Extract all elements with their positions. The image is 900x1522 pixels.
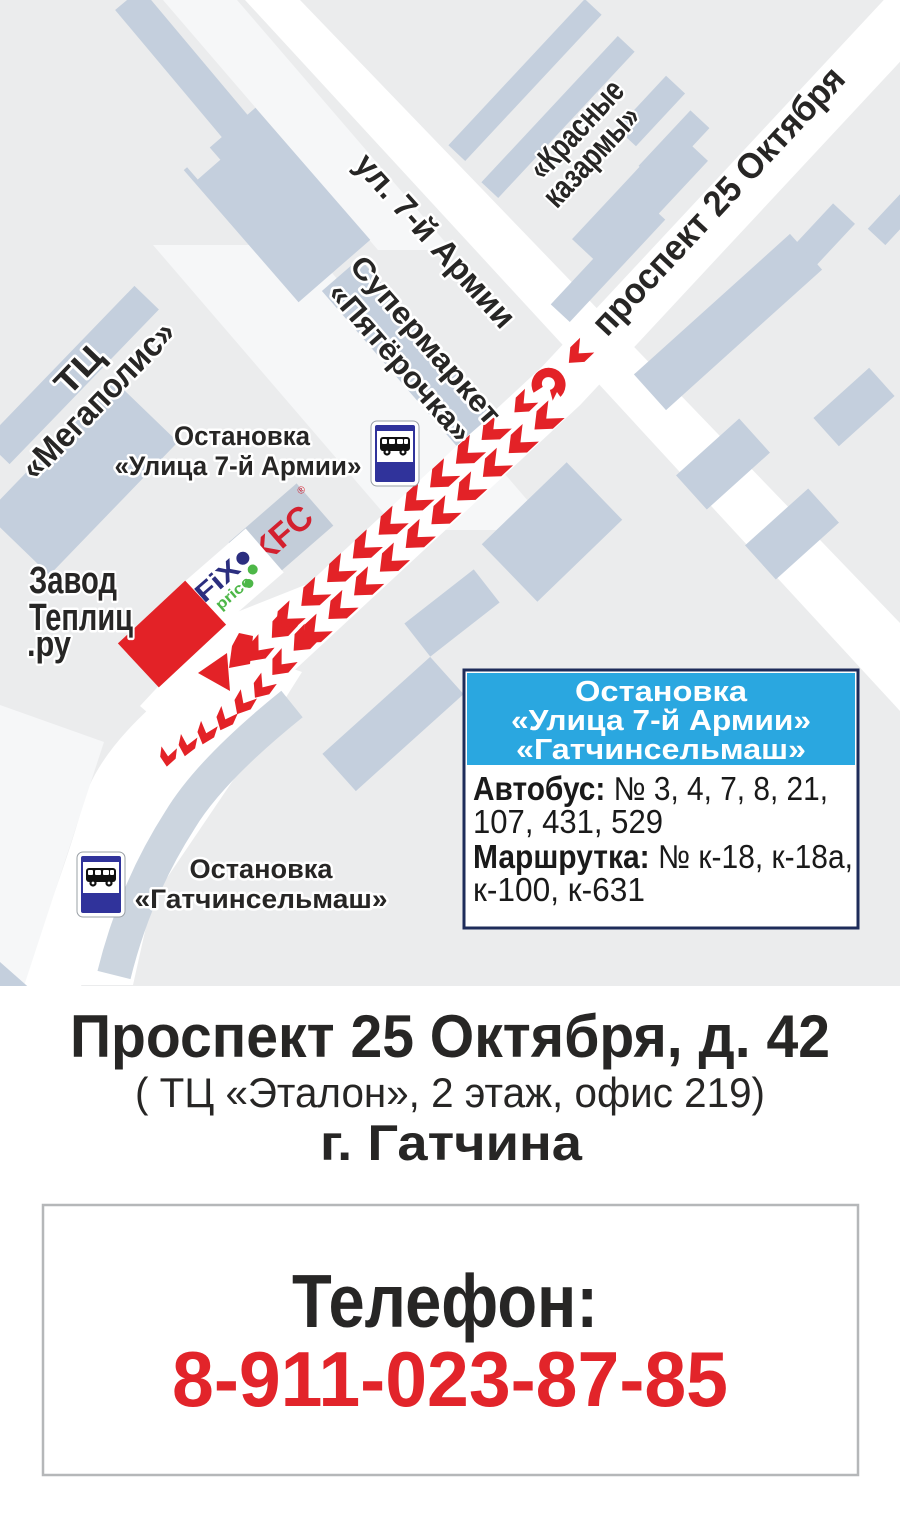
svg-text:г. Гатчина: г. Гатчина (320, 1115, 583, 1171)
svg-text:«Улица 7-й Армии»: «Улица 7-й Армии» (511, 705, 811, 737)
svg-text:Телефон:: Телефон: (292, 1259, 598, 1343)
svg-text:Остановка: Остановка (174, 421, 311, 451)
svg-text:Остановка: Остановка (575, 676, 748, 708)
svg-text:«Улица 7-й Армии»: «Улица 7-й Армии» (115, 451, 362, 481)
svg-text:«Гатчинсельмаш»: «Гатчинсельмаш» (135, 884, 388, 914)
svg-text:Проспект 25 Октября, д. 42: Проспект 25 Октября, д. 42 (70, 1003, 830, 1070)
svg-text:Маршрутка: № к-18, к-18а,: Маршрутка: № к-18, к-18а, (473, 838, 853, 875)
svg-text:107, 431, 529: 107, 431, 529 (473, 803, 663, 840)
svg-text:Остановка: Остановка (190, 854, 334, 884)
svg-text:( ТЦ «Эталон», 2 этаж, офис 21: ( ТЦ «Эталон», 2 этаж, офис 219) (135, 1069, 765, 1116)
svg-text:Завод: Завод (29, 560, 117, 602)
svg-text:Автобус: № 3, 4, 7, 8, 21,: Автобус: № 3, 4, 7, 8, 21, (473, 770, 828, 807)
svg-text:8-911-023-87-85: 8-911-023-87-85 (172, 1335, 728, 1423)
svg-text:.ру: .ру (27, 623, 71, 664)
svg-text:к-100, к-631: к-100, к-631 (473, 871, 645, 908)
svg-text:«Гатчинсельмаш»: «Гатчинсельмаш» (516, 734, 806, 766)
